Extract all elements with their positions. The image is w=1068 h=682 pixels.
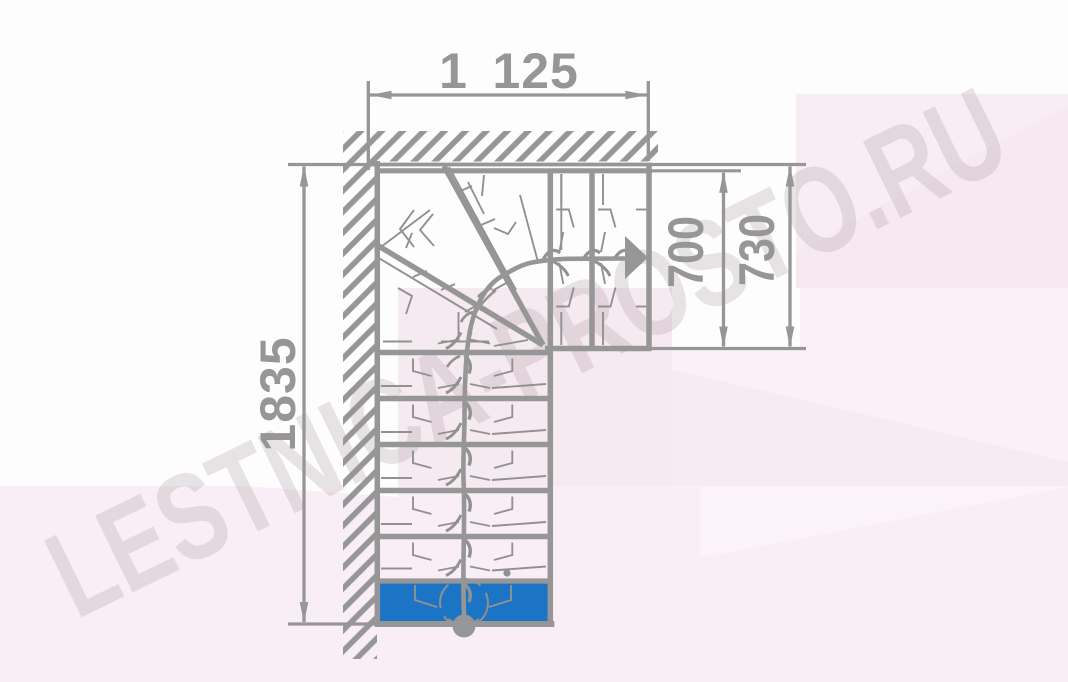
svg-text:1 125: 1 125: [439, 43, 579, 99]
svg-text:730: 730: [729, 214, 785, 286]
svg-text:700: 700: [658, 216, 714, 288]
svg-text:1835: 1835: [250, 336, 306, 451]
